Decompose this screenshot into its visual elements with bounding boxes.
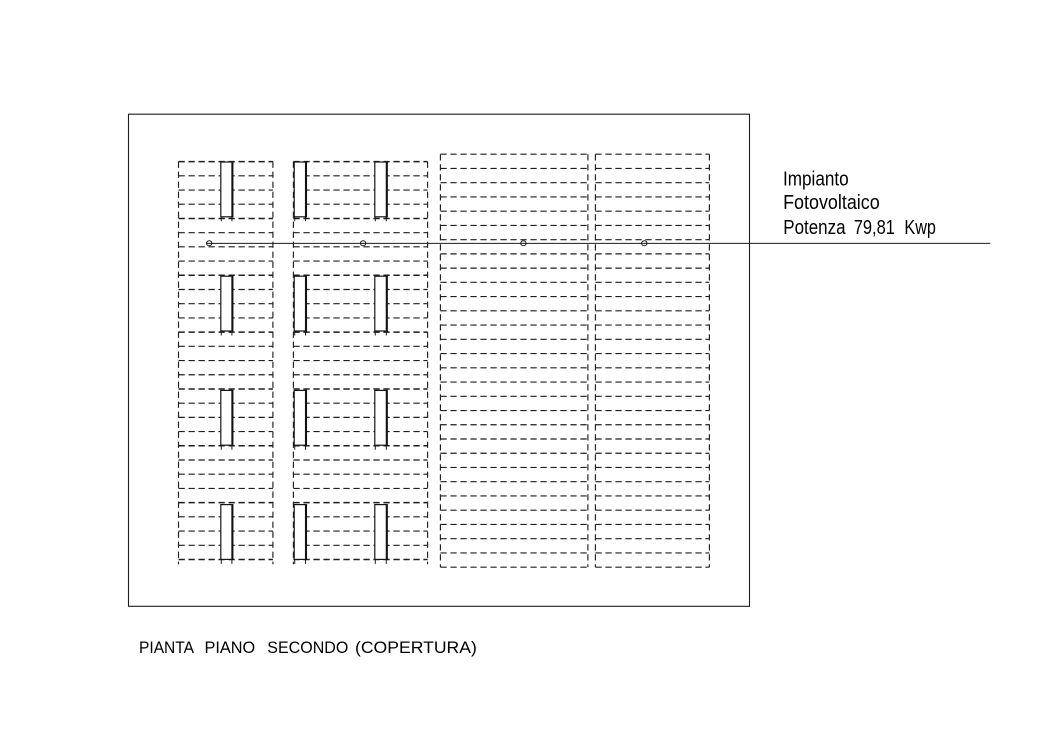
svg-text:Impianto: Impianto xyxy=(783,169,849,191)
svg-text:Fotovoltaico: Fotovoltaico xyxy=(783,192,880,214)
svg-text:Kwp: Kwp xyxy=(904,217,936,239)
svg-text:PIANTA: PIANTA xyxy=(139,638,195,657)
svg-text:SECONDO: SECONDO xyxy=(267,638,348,657)
svg-text:(COPERTURA): (COPERTURA) xyxy=(355,638,477,657)
svg-text:Potenza: Potenza xyxy=(783,217,846,239)
svg-text:79,81: 79,81 xyxy=(854,217,895,239)
svg-text:PIANO: PIANO xyxy=(205,638,256,657)
